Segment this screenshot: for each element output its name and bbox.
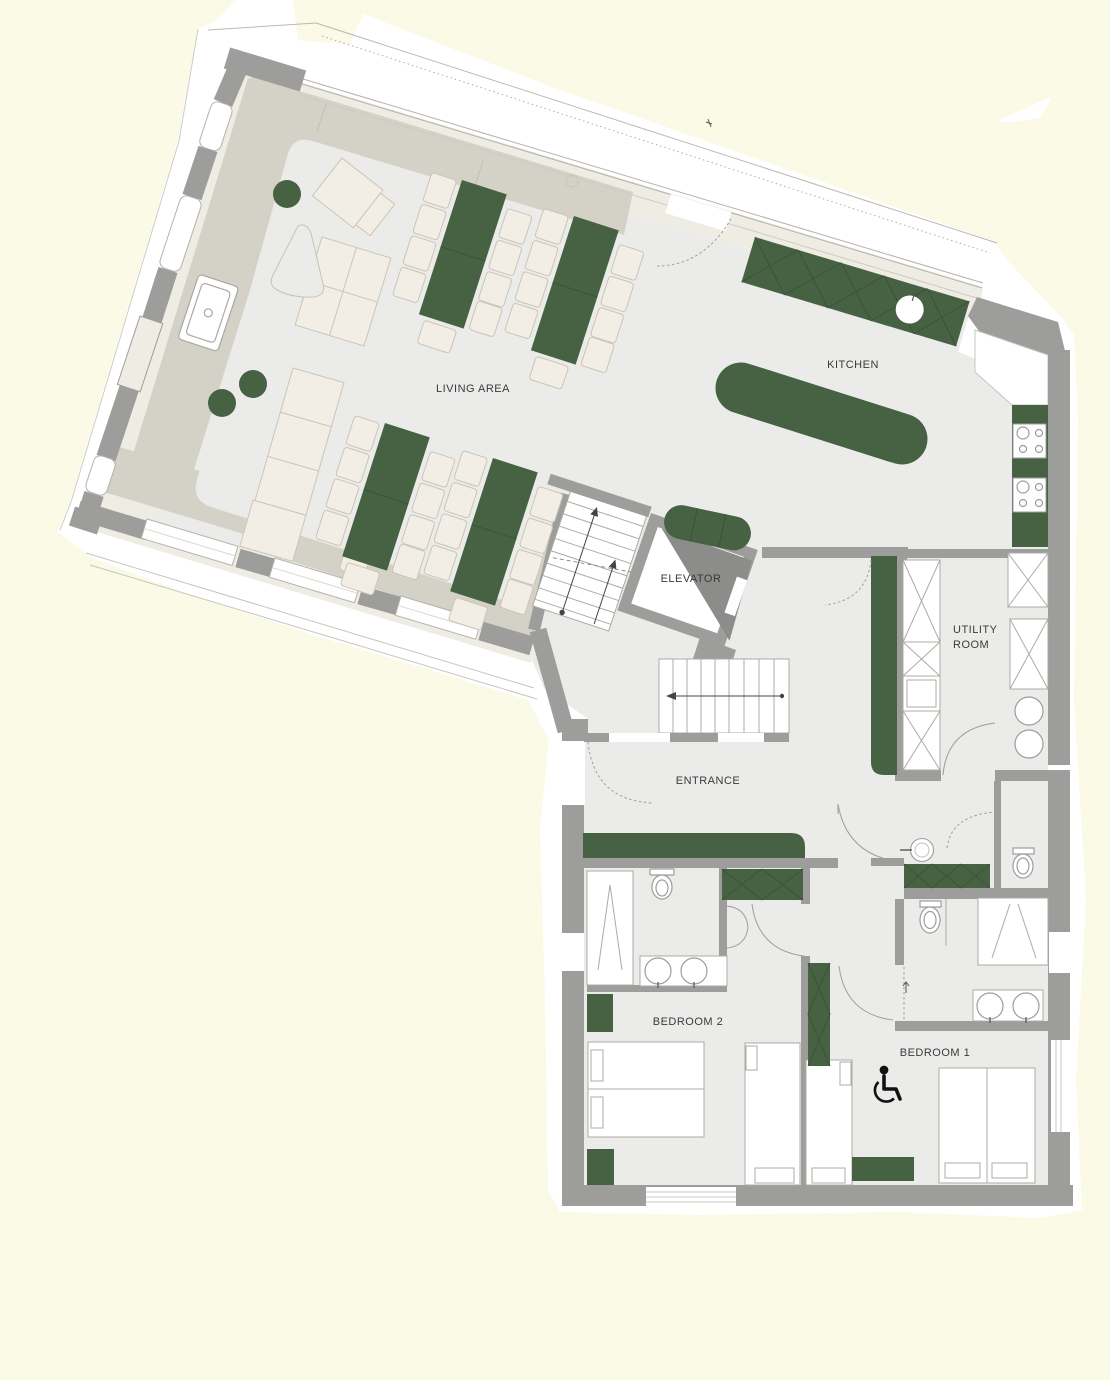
- svg-text:ELEVATOR: ELEVATOR: [661, 573, 722, 585]
- svg-text:BEDROOM 2: BEDROOM 2: [653, 1016, 724, 1028]
- svg-text:BEDROOM 1: BEDROOM 1: [900, 1047, 971, 1059]
- svg-text:ENTRANCE: ENTRANCE: [676, 775, 741, 787]
- svg-text:KITCHEN: KITCHEN: [827, 359, 879, 371]
- svg-text:LIVING AREA: LIVING AREA: [436, 383, 510, 395]
- svg-text:UTILITY: UTILITY: [953, 624, 998, 636]
- svg-text:ROOM: ROOM: [953, 639, 989, 651]
